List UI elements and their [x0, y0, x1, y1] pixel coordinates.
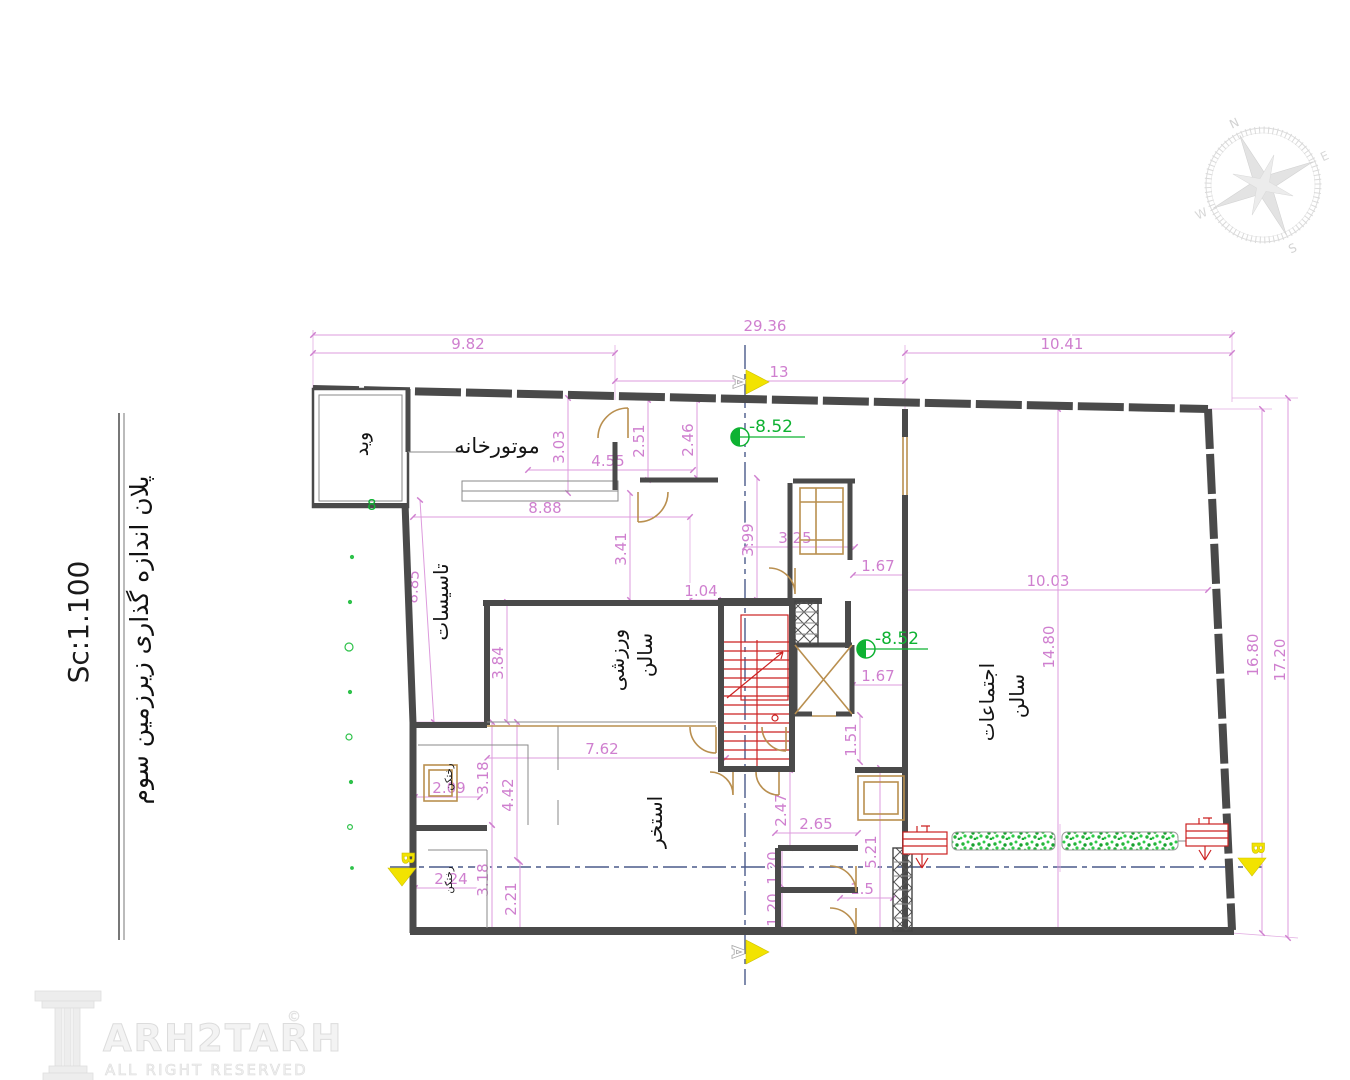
dim-label: 17.20: [1271, 639, 1289, 682]
copyright-symbol: ©: [287, 1009, 301, 1025]
compass-north-label: N: [1227, 115, 1241, 131]
dim-label: 7.62: [585, 740, 618, 758]
room-label-locker-upper: رختکن: [444, 763, 455, 790]
dim-label: 29.36: [744, 317, 787, 335]
room-label-void: وید: [351, 432, 373, 456]
dim-label: 10.41: [1041, 335, 1084, 353]
dim-label: 2.51: [630, 424, 648, 457]
compass-south-label: S: [1286, 240, 1299, 256]
dim-label: 1.67: [861, 667, 894, 685]
dim-label: 2.46: [679, 423, 697, 456]
dim-label: 2.47: [772, 793, 790, 826]
elevation-value: -8.52: [875, 629, 919, 649]
dim-label: 4.42: [499, 778, 517, 811]
planter: [952, 832, 1188, 850]
section-letter: B: [1247, 842, 1267, 855]
scale-label: Sc:1.100: [62, 561, 95, 684]
section-marker-a-bottom: A: [727, 940, 769, 964]
section-marker-a-top: A: [728, 370, 769, 394]
dim-label: 1.67: [861, 557, 894, 575]
floor-plan-canvas: N E S W پلان اندازه گذاری زیرزمین سوم Sc…: [0, 0, 1350, 1080]
dim-label: 8.88: [528, 499, 561, 517]
compass-west-label: W: [1193, 205, 1210, 223]
brand-text: ARH2TARH: [103, 1017, 343, 1060]
dim-label: 1.04: [684, 582, 717, 600]
section-letter: A: [727, 945, 747, 959]
drain-symbol: [1186, 818, 1228, 860]
level-marker: -8.52: [731, 417, 805, 446]
room-label-pool: استخر: [643, 796, 667, 849]
room-labels: وید موتورخانه تاسیسات سالن ورزشی استخر س…: [351, 432, 1029, 894]
level-marker: -8.52: [857, 629, 928, 658]
fixtures-layer: [424, 408, 1228, 934]
room-label-locker-lower: رختکن: [444, 866, 455, 893]
room-label-assembly-2: اجتماعات: [975, 663, 999, 741]
dim-label: 4.55: [591, 452, 624, 470]
dim-label: 2.65: [799, 815, 832, 833]
dim-label: 3.84: [489, 646, 507, 679]
dim-label: 3.25: [778, 529, 811, 547]
staircase: [724, 615, 789, 766]
dim-label: 16.80: [1244, 634, 1262, 677]
compass-rose: N E S W: [1164, 87, 1350, 286]
section-letter: B: [397, 852, 417, 865]
dim-label: 9.82: [451, 335, 484, 353]
landscape-dots: [345, 555, 354, 869]
room-label-gym-1: سالن: [633, 633, 657, 677]
watermark-logo: ARH2TARH © ALL RIGHT RESERVED: [35, 991, 343, 1080]
dim-label: 10.03: [1027, 572, 1070, 590]
elevation-value: -8.52: [749, 417, 793, 437]
section-marker-b-right: B: [1238, 842, 1267, 876]
room-label-utilities: تاسیسات: [429, 563, 453, 640]
grid-note: 8: [367, 496, 377, 514]
dim-label: 3.99: [739, 523, 757, 556]
dim-label: 14.80: [1040, 626, 1058, 669]
title-block: پلان اندازه گذاری زیرزمین سوم Sc:1.100: [62, 413, 154, 940]
room-label-assembly-1: سالن: [1005, 674, 1029, 718]
column-icon: [35, 991, 101, 1080]
dim-label: 3.41: [612, 532, 630, 565]
dim-label: 2.21: [502, 882, 520, 915]
dim-label: 5.21: [862, 835, 880, 868]
dim-label: 1.51: [842, 723, 860, 756]
tagline-text: ALL RIGHT RESERVED: [105, 1061, 308, 1079]
dim-label: 3.18: [474, 863, 492, 896]
dim-label: 13: [769, 363, 788, 381]
dim-label: 3.18: [474, 761, 492, 794]
room-label-boiler: موتورخانه: [454, 434, 539, 458]
plan-title: پلان اندازه گذاری زیرزمین سوم: [125, 475, 154, 804]
section-letter: A: [728, 375, 748, 389]
compass-east-label: E: [1318, 148, 1331, 164]
dim-label: 3.03: [550, 430, 568, 463]
room-label-gym-2: ورزشی: [605, 629, 629, 691]
